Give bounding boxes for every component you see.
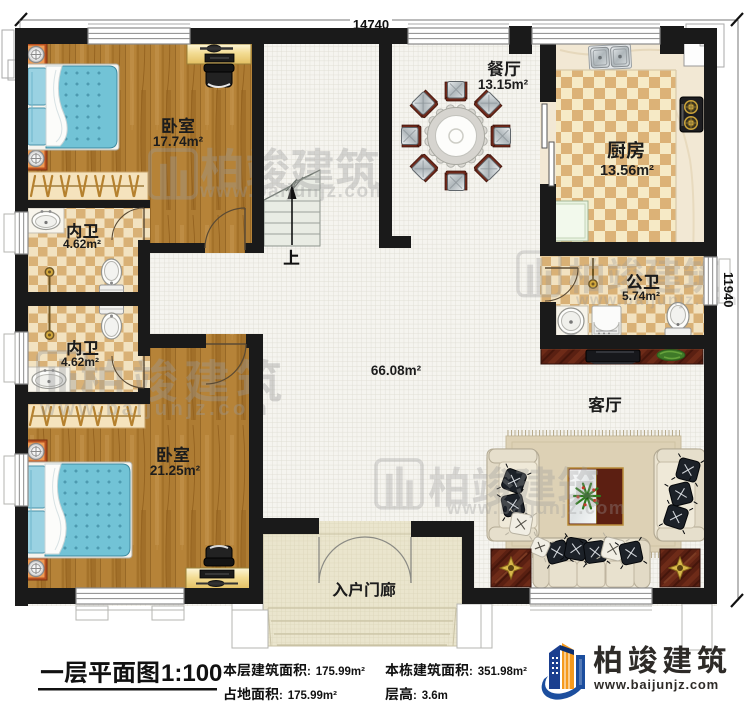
svg-text:13.56m²: 13.56m² — [600, 163, 654, 179]
svg-text:11940: 11940 — [721, 272, 736, 307]
svg-text:4.62m²: 4.62m² — [61, 355, 99, 369]
svg-text:175.99m²: 175.99m² — [316, 666, 365, 678]
svg-text::: : — [307, 666, 311, 678]
svg-text::: : — [413, 690, 417, 702]
svg-text::: : — [279, 690, 283, 702]
svg-text:175.99m²: 175.99m² — [288, 690, 337, 702]
svg-text:www.baijunjz.com: www.baijunjz.com — [593, 677, 719, 692]
svg-text:1:100: 1:100 — [161, 660, 222, 687]
svg-text:3.6m: 3.6m — [422, 690, 448, 702]
svg-text:21.25m²: 21.25m² — [150, 463, 201, 478]
svg-text:13.15m²: 13.15m² — [478, 77, 529, 92]
svg-text:66.08m²: 66.08m² — [371, 363, 422, 378]
svg-text::: : — [469, 666, 473, 678]
svg-text:5.74m²: 5.74m² — [622, 289, 660, 303]
svg-text:www.baijunjz.com: www.baijunjz.com — [446, 498, 626, 518]
svg-text:351.98m²: 351.98m² — [478, 666, 527, 678]
svg-text:4.62m²: 4.62m² — [63, 237, 101, 251]
svg-text:www.baijunjz.com: www.baijunjz.com — [199, 181, 388, 202]
svg-text:17.74m²: 17.74m² — [153, 134, 204, 149]
